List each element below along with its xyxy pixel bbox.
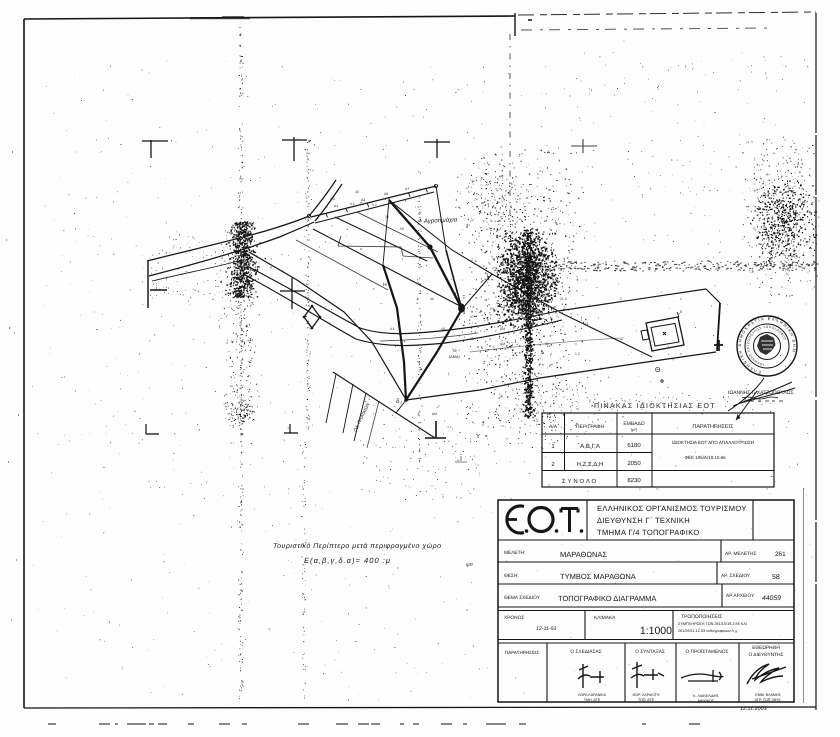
svg-text:ΘΕΣΗ:: ΘΕΣΗ: — [504, 573, 519, 579]
svg-text:Ο ΣΥΝΤΑΞΑΣ: Ο ΣΥΝΤΑΞΑΣ — [635, 649, 665, 655]
svg-text:ΣΥΜΠΛΗΡΩΣΗ ΤΩΝ 261/15/19.2.66: ΣΥΜΠΛΗΡΩΣΗ ΤΩΝ 261/15/19.2.66 ΚΑΙ — [678, 622, 747, 626]
svg-text:Ο ΣΧΕΔΙΑΣΑΣ: Ο ΣΧΕΔΙΑΣΑΣ — [570, 649, 601, 655]
svg-text:ΑΡ. ΣΧΕΔΙΟΥ: ΑΡ. ΣΧΕΔΙΟΥ — [721, 573, 751, 579]
svg-text:ΚΛΙΜΑΚΑ: ΚΛΙΜΑΚΑ — [594, 615, 616, 621]
svg-text:58: 58 — [772, 574, 780, 581]
svg-text:32: 32 — [385, 215, 389, 219]
svg-text:21.3: 21.3 — [560, 297, 567, 301]
svg-text:ΛΩΡΑ ΚΑΡΑΝΙΚΑ: ΛΩΡΑ ΚΑΡΑΝΙΚΑ — [578, 693, 607, 697]
svg-text:ΜΑΡΑΘΩΝΑΣ: ΜΑΡΑΘΩΝΑΣ — [560, 550, 607, 559]
svg-text:40: 40 — [355, 190, 359, 194]
svg-text:Η: Η — [383, 282, 387, 288]
svg-text:1: 1 — [680, 297, 682, 301]
svg-text:Α,Β,Γ,Α: Α,Β,Γ,Α — [580, 443, 600, 450]
svg-text:ΠΑΡΑΤΗΡΗΣΕΙΣ: ΠΑΡΑΤΗΡΗΣΕΙΣ — [505, 650, 540, 655]
svg-text:ΙΩΑΝΝΗΣ Γ. ΧΑΤΖΟΠΟΥΛΟΣ: ΙΩΑΝΝΗΣ Γ. ΧΑΤΖΟΠΟΥΛΟΣ — [728, 390, 794, 396]
svg-text:8230: 8230 — [627, 477, 641, 484]
svg-text:ΤΡΟΠΟΠΟΙΗΣΕΙΣ: ΤΡΟΠΟΠΟΙΗΣΕΙΣ — [681, 614, 722, 620]
svg-text:Κ. ΛΙΑΚΕΛΙΔΗΣ: Κ. ΛΙΑΚΕΛΙΔΗΣ — [693, 694, 719, 698]
svg-text:4.1: 4.1 — [350, 202, 355, 206]
svg-text:Τθ: Τθ — [452, 349, 456, 353]
svg-text:Θ: Θ — [655, 367, 661, 374]
svg-text:Α1: Α1 — [334, 204, 338, 208]
svg-text:Α/Α: Α/Α — [549, 424, 558, 430]
svg-text:68: 68 — [470, 337, 474, 341]
svg-text:6180: 6180 — [627, 442, 641, 449]
svg-text:261: 261 — [775, 551, 786, 558]
svg-text:Α4: Α4 — [361, 198, 365, 202]
svg-text:261/26/11.12.03 τοπογραφικων: 261/26/11.12.03 τοπογραφικων Λ.χ. — [678, 629, 738, 633]
svg-text:44059: 44059 — [762, 595, 781, 602]
svg-text:ΠΑΡΑΤΗΡΗΣΕΙΣ: ΠΑΡΑΤΗΡΗΣΕΙΣ — [692, 424, 734, 430]
svg-text:ΕΘΕΩΡΗΘΗ: ΕΘΕΩΡΗΘΗ — [752, 645, 780, 651]
svg-text:ΑΡ. ΜΕΛΕΤΗΣ: ΑΡ. ΜΕΛΕΤΗΣ — [725, 551, 756, 557]
svg-text:ΔΜ: ΔΜ — [432, 412, 437, 416]
svg-text:κ: κ — [300, 257, 302, 261]
svg-text:ΔΓ: ΔΓ — [620, 337, 624, 341]
svg-text:ΑΡ ΑΡΧΕΙΟΥ: ΑΡ ΑΡΧΕΙΟΥ — [726, 593, 755, 599]
svg-text:2: 2 — [620, 297, 622, 301]
svg-text:(ΔΜΔ): (ΔΜΔ) — [449, 355, 460, 359]
svg-text:Α7: Α7 — [405, 187, 409, 191]
svg-text:47: 47 — [470, 315, 474, 319]
svg-text:ΔΜ: ΔΜ — [500, 342, 505, 346]
svg-text:12.11.2003: 12.11.2003 — [740, 706, 767, 712]
svg-text:ΦΕΚ 185/Α/19.10.66: ΦΕΚ 185/Α/19.10.66 — [684, 455, 726, 460]
svg-text:40: 40 — [430, 297, 434, 301]
svg-text:ΑΓΡ. ΤΟΠ. ΜΗΧ.: ΑΓΡ. ΤΟΠ. ΜΗΧ. — [755, 698, 782, 702]
svg-text:ΕΜΜ. ΒΛΑΜΗΣ: ΕΜΜ. ΒΛΑΜΗΣ — [755, 693, 781, 697]
svg-text:ε1: ε1 — [585, 322, 589, 326]
svg-text:(μ²): (μ²) — [631, 427, 638, 432]
svg-text:5: 5 — [680, 310, 682, 314]
svg-text:12-11-93: 12-11-93 — [536, 626, 556, 632]
svg-text:ΜΕΛΕΤΗ:: ΜΕΛΕΤΗ: — [504, 550, 525, 556]
svg-text:ΤΟΠΟΓΡΑΦΙΚΟ ΔΙΑΓΡΑΜΜΑ: ΤΟΠΟΓΡΑΦΙΚΟ ΔΙΑΓΡΑΜΜΑ — [558, 594, 656, 603]
svg-text:1:1000: 1:1000 — [640, 625, 672, 637]
svg-text:ΤΜΗ. ΑΤΕ: ΤΜΗ. ΑΤΕ — [584, 698, 601, 702]
svg-text:ΤΟΠ. ΑΤΕ: ΤΟΠ. ΑΤΕ — [638, 698, 655, 702]
svg-text:ΤΥΜΒΟΣ ΜΑΡΑΘΩΝΑ: ΤΥΜΒΟΣ ΜΑΡΑΘΩΝΑ — [560, 572, 636, 581]
svg-text:-40-: -40- — [440, 327, 446, 331]
svg-text:Α5: Α5 — [384, 192, 388, 196]
svg-text:Τουριστικό Περίπτερο μετά περι: Τουριστικό Περίπτερο μετά περιφραγμένο χ… — [273, 542, 441, 550]
svg-text:Η,Ζ,Σ,Δ,Η: Η,Ζ,Σ,Δ,Η — [577, 461, 604, 468]
svg-text:ΙΔΙΟΚΤΗΣΙΑ ΕΟΤ ΑΠΟ ΑΠΑΛΛΟΤΡΙΩΣ: ΙΔΙΟΚΤΗΣΙΑ ΕΟΤ ΑΠΟ ΑΠΑΛΛΟΤΡΙΩΣΗ — [672, 440, 754, 445]
svg-text:4.0: 4.0 — [330, 197, 335, 201]
svg-text:49: 49 — [418, 219, 422, 223]
svg-text:2050: 2050 — [627, 460, 641, 467]
svg-text:58: 58 — [400, 227, 404, 231]
svg-text:ο: ο — [680, 352, 682, 356]
svg-text:1.2: 1.2 — [575, 352, 580, 356]
svg-text:θ: θ — [600, 367, 602, 371]
svg-text:Ο ΔΙΕΥΘΥΝΤΗΣ: Ο ΔΙΕΥΘΥΝΤΗΣ — [748, 652, 783, 658]
svg-text:Ε(α,β,γ,δ.α)= 400 :μ: Ε(α,β,γ,δ.α)= 400 :μ — [304, 556, 390, 565]
svg-text:ΤΜΗΜΑ Γ/4 ΤΟΠΟΓΡΑΦΙΚΟ: ΤΜΗΜΑ Γ/4 ΤΟΠΟΓΡΑΦΙΚΟ — [597, 528, 700, 537]
svg-text:ΔΜ: ΔΜ — [500, 327, 505, 331]
svg-text:ΣΥΝΟΛΟ: ΣΥΝΟΛΟ — [562, 478, 598, 485]
svg-text:ΧΡΟΝΟΣ: ΧΡΟΝΟΣ — [504, 615, 524, 621]
svg-text:α: α — [360, 247, 362, 251]
svg-text:6.2: 6.2 — [372, 203, 377, 207]
svg-text:ΠΕΡΙΓΡΑΦΗ: ΠΕΡΙΓΡΑΦΗ — [576, 424, 605, 430]
svg-text:ΠΙΝΑΚΑΣ ΙΔΙΟΚΤΗΣΙΑΣ ΕΟΤ: ΠΙΝΑΚΑΣ ΙΔΙΟΚΤΗΣΙΑΣ ΕΟΤ — [594, 403, 716, 410]
svg-text:ΘΕΜΑ ΣΧΕΔΙΟΥ: ΘΕΜΑ ΣΧΕΔΙΟΥ — [504, 595, 541, 601]
svg-text:ψπ: ψπ — [466, 562, 474, 568]
svg-text:86: 86 — [545, 342, 549, 346]
svg-text:4.1: 4.1 — [390, 327, 395, 331]
svg-text:ΔΙΕΥΘΥΝΣΗ Γ΄ ΤΕΧΝΙΚΗ: ΔΙΕΥΘΥΝΣΗ Γ΄ ΤΕΧΝΙΚΗ — [597, 516, 690, 525]
svg-text:μ: μ — [270, 265, 272, 269]
svg-text:Ζ: Ζ — [494, 267, 497, 273]
svg-text:ΘΩΡ. ΧΑΡΑΚΙΤΗ: ΘΩΡ. ΧΑΡΑΚΙΤΗ — [633, 693, 660, 697]
svg-text:ΕΛΛΗΝΙΚΟΣ ΟΡΓΑΝΙΣΜΟΣ ΤΟΥΡΙΣΜΟΥ: ΕΛΛΗΝΙΚΟΣ ΟΡΓΑΝΙΣΜΟΣ ΤΟΥΡΙΣΜΟΥ — [597, 504, 747, 513]
svg-text:ΜΗΧ/ΚΟΣ: ΜΗΧ/ΚΟΣ — [698, 699, 715, 703]
svg-text:Ο ΠΡΟΪΣΤΑΜΕΝΟΣ: Ο ΠΡΟΪΣΤΑΜΕΝΟΣ — [686, 648, 729, 655]
